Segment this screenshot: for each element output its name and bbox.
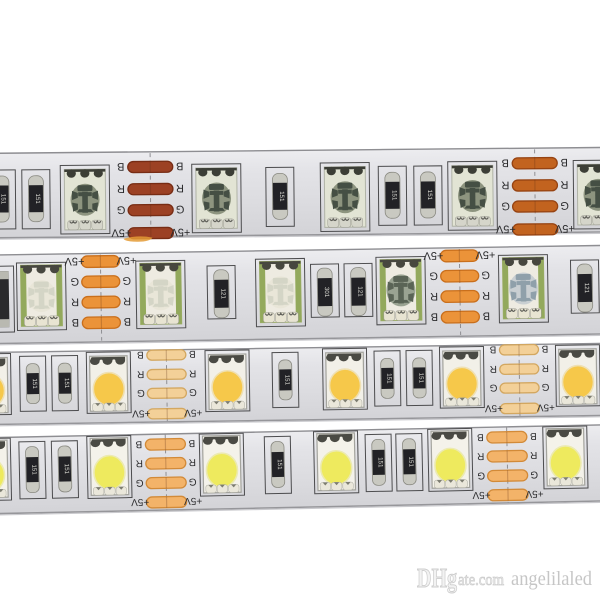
svg-text:+5V: +5V [423,249,444,261]
svg-text:151: 151 [63,378,70,389]
svg-text:+5V: +5V [495,223,516,235]
svg-text:R: R [136,457,143,468]
svg-text:B: B [483,310,491,322]
svg-text:121: 121 [356,286,363,297]
svg-text:+5V: +5V [475,248,496,260]
svg-text:+5V: +5V [131,496,150,507]
svg-text:121: 121 [219,289,226,300]
svg-text:151: 151 [63,464,70,475]
svg-text:B: B [72,316,80,328]
svg-text:151: 151 [283,375,290,386]
svg-text:B: B [189,348,196,359]
svg-text:R: R [482,289,490,301]
svg-text:R: R [176,182,184,194]
svg-text:G: G [176,203,185,215]
svg-text:G: G [489,382,497,393]
svg-text:B: B [501,156,508,168]
svg-text:G: G [189,386,197,397]
svg-text:B: B [117,160,124,172]
svg-text:B: B [135,438,142,449]
svg-text:R: R [560,178,568,190]
svg-text:G: G [135,477,143,488]
svg-text:+5V: +5V [184,495,203,506]
svg-text:R: R [430,290,438,302]
svg-text:+5V: +5V [184,407,203,418]
svg-text:R: R [189,367,196,378]
svg-text:G: G [541,381,549,392]
svg-text:G: G [137,387,145,398]
svg-text:+5V: +5V [525,488,544,499]
svg-text:B: B [541,343,548,354]
svg-text:G: G [481,269,490,281]
svg-text:151: 151 [278,191,285,202]
svg-text:R: R [71,295,79,307]
svg-text:G: G [429,269,438,281]
svg-text:R: R [117,182,125,194]
svg-text:151: 151 [426,190,433,201]
svg-text:R: R [189,456,196,467]
svg-text:G: G [501,200,510,212]
svg-text:151: 151 [30,464,37,475]
svg-text:R: R [123,295,131,307]
svg-text:+5V: +5V [116,254,137,266]
svg-text:G: G [530,468,538,479]
svg-text:151: 151 [276,459,283,470]
svg-text:DHg: DHg [417,563,457,593]
svg-text:B: B [176,160,183,172]
svg-text:B: B [137,349,144,360]
svg-text:G: G [477,470,485,481]
svg-text:151: 151 [407,456,414,467]
svg-text:151: 151 [385,373,392,384]
svg-text:G: G [70,275,79,287]
svg-text:151: 151 [34,193,41,204]
svg-text:B: B [431,310,439,322]
svg-text:ate.com: ate.com [458,570,504,589]
svg-text:+5V: +5V [170,226,191,238]
svg-text:151: 151 [417,373,424,384]
svg-text:G: G [117,203,126,215]
svg-text:G: G [560,199,569,211]
svg-text:B: B [560,156,567,168]
svg-text:B: B [530,430,537,441]
svg-text:R: R [542,362,549,373]
svg-text:+5V: +5V [484,402,503,413]
svg-text:+5V: +5V [554,222,575,234]
svg-text:151: 151 [390,190,397,201]
svg-text:+5V: +5V [132,407,151,418]
svg-text:B: B [124,315,132,327]
svg-text:angelilaled: angelilaled [511,568,592,590]
svg-text:R: R [490,363,497,374]
svg-text:151: 151 [31,378,38,389]
svg-text:B: B [188,437,195,448]
svg-text:121: 121 [583,283,590,294]
svg-text:+5V: +5V [536,401,555,412]
svg-text:+5V: +5V [111,226,132,238]
svg-text:B: B [489,343,496,354]
svg-text:R: R [501,179,509,191]
svg-text:301: 301 [323,287,330,298]
svg-text:+5V: +5V [64,255,85,267]
svg-text:+5V: +5V [472,489,491,500]
svg-text:R: R [137,368,144,379]
svg-text:151: 151 [377,457,384,468]
svg-text:R: R [477,450,484,461]
svg-text:G: G [188,476,196,487]
svg-text:G: G [122,274,131,286]
svg-text:B: B [477,431,484,442]
svg-text:R: R [530,449,537,460]
svg-text:151: 151 [0,194,7,205]
